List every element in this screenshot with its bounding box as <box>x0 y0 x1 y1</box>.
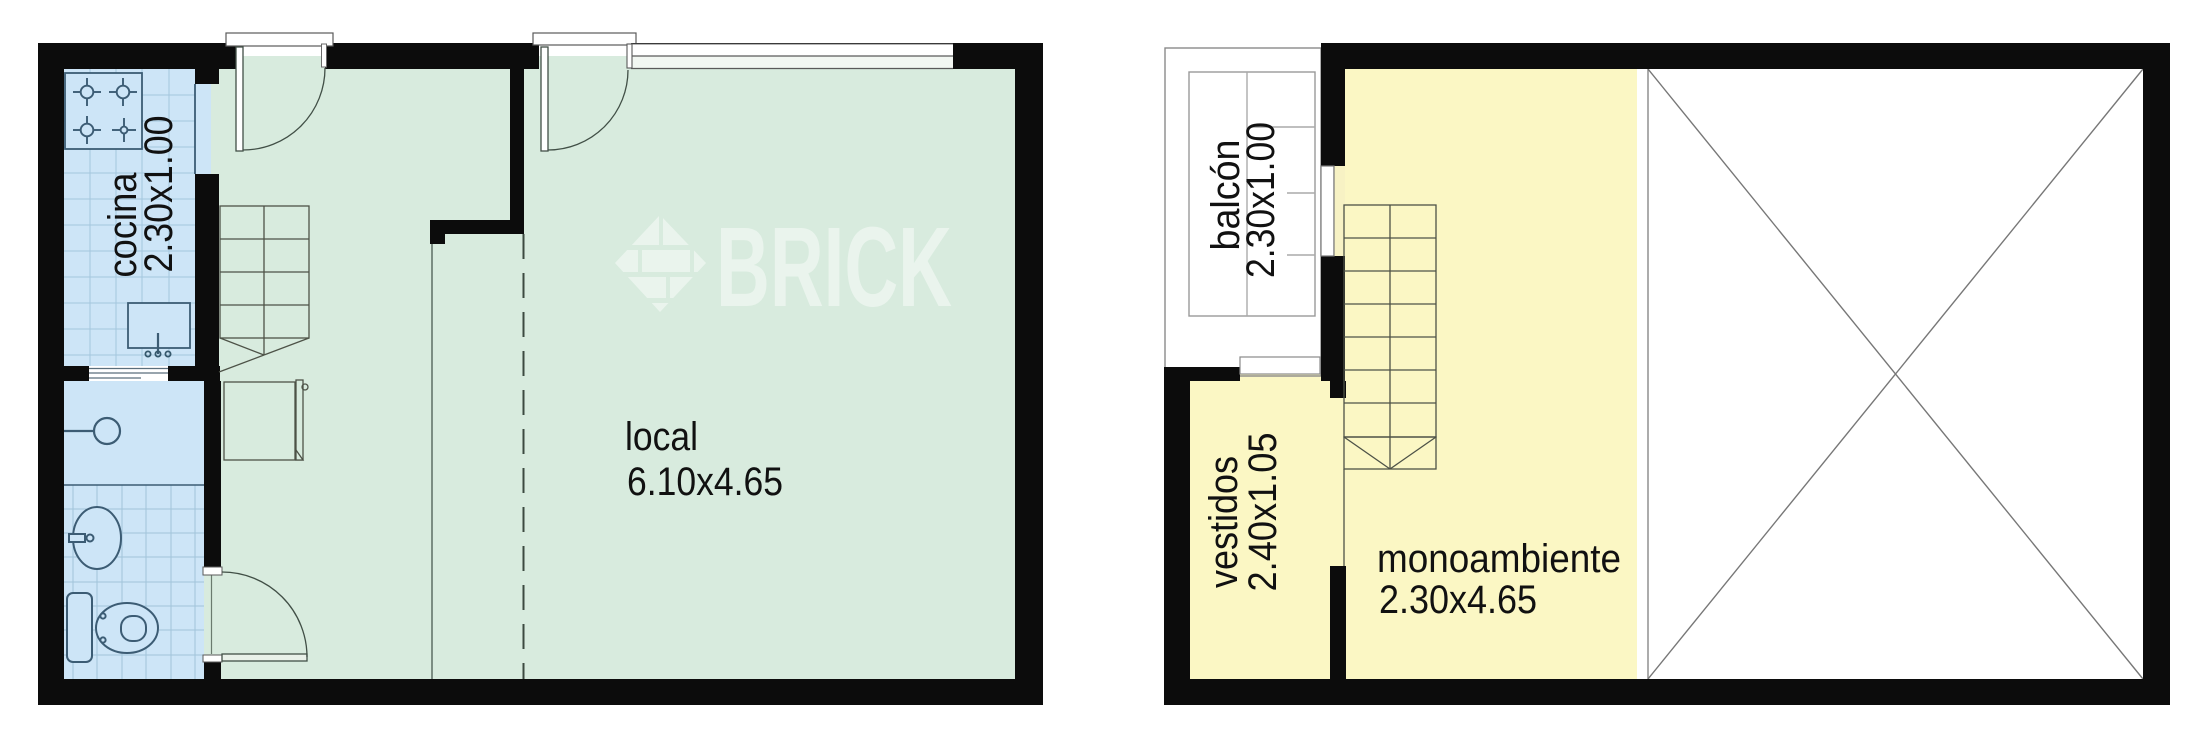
svg-text:local: local <box>625 415 698 459</box>
svg-text:6.10x4.65: 6.10x4.65 <box>627 460 783 504</box>
svg-text:vestidos: vestidos <box>1202 456 1246 588</box>
svg-text:2.30x1.00: 2.30x1.00 <box>137 116 181 273</box>
svg-text:monoambiente: monoambiente <box>1377 537 1621 581</box>
svg-text:2.40x1.05: 2.40x1.05 <box>1241 433 1285 592</box>
svg-text:2.30x4.65: 2.30x4.65 <box>1379 578 1537 622</box>
svg-text:2.30x1.00: 2.30x1.00 <box>1239 122 1283 278</box>
svg-text:BRICK: BRICK <box>716 204 952 330</box>
